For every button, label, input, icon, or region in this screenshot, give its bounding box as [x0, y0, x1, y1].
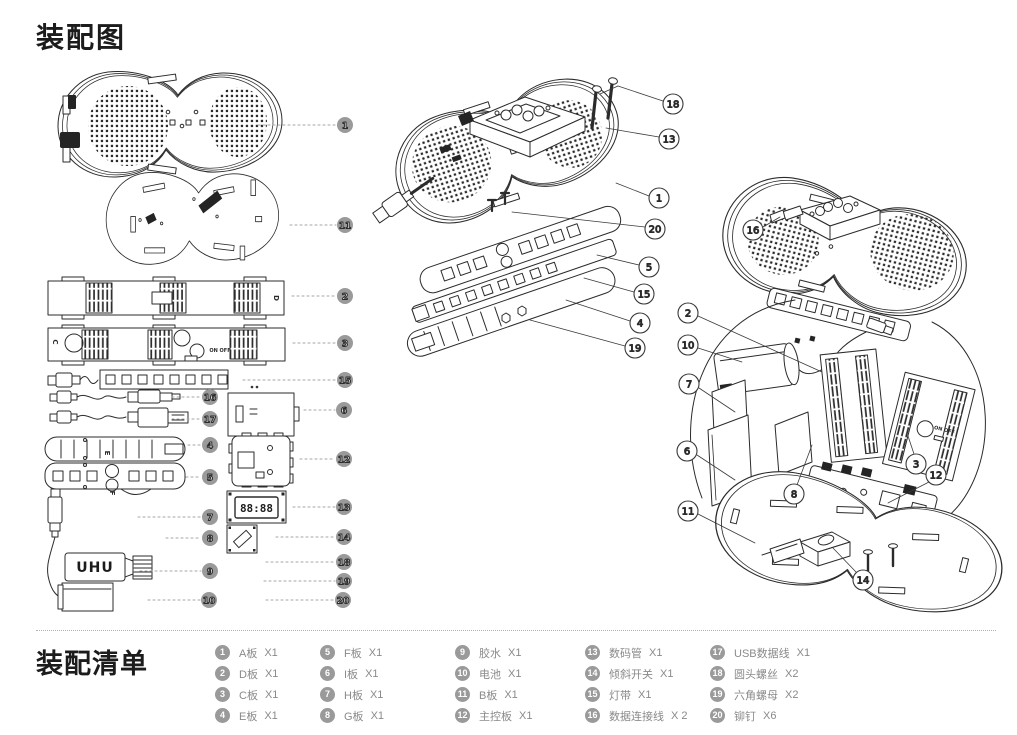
item-label: I板: [344, 666, 358, 682]
callout-chip: 7: [202, 509, 218, 525]
svg-text:6: 6: [684, 447, 690, 458]
svg-text:4: 4: [637, 319, 643, 330]
item-number-badge: 2: [215, 666, 230, 681]
parts-list-item: 3C板X1: [215, 687, 278, 702]
item-qty: X1: [638, 689, 651, 701]
svg-text:10: 10: [203, 597, 216, 607]
svg-text:2: 2: [342, 293, 348, 303]
parts-list-item: 10电池X1: [455, 666, 532, 681]
svg-text:14: 14: [857, 576, 870, 587]
svg-text:18: 18: [667, 100, 680, 111]
footer-divider: [36, 630, 996, 631]
item-label: B板: [479, 687, 497, 703]
callout-circle: 16: [743, 220, 763, 240]
parts-list-item: 6I板X1: [320, 666, 384, 681]
part-drawing-digital-tube: 88:88: [227, 491, 286, 523]
parts-list-column-4: 13数码管X1 14倾斜开关X1 15灯带X1 16数据连接线X 2: [585, 645, 688, 723]
item-label: A板: [239, 645, 257, 661]
parts-list-item: 16数据连接线X 2: [585, 708, 688, 723]
svg-text:19: 19: [629, 344, 642, 355]
callout-chip: 14: [336, 529, 352, 545]
part-drawing-data-cable: [50, 390, 180, 403]
svg-text:7: 7: [207, 514, 213, 524]
callout-circle: 8: [784, 484, 804, 504]
item-qty: X1: [365, 668, 378, 680]
item-label: 六角螺母: [734, 687, 778, 703]
part-drawing-b-board: [106, 173, 278, 265]
parts-list-item: 5F板X1: [320, 645, 384, 660]
svg-text:12: 12: [930, 471, 943, 482]
svg-text:10: 10: [682, 341, 695, 352]
svg-text:19: 19: [338, 578, 351, 588]
item-number-badge: 7: [320, 687, 335, 702]
parts-list-item: 12主控板X1: [455, 708, 532, 723]
item-label: D板: [239, 666, 258, 682]
callout-circle: 11: [678, 501, 698, 521]
etched-letter-f: F: [108, 491, 116, 496]
svg-text:5: 5: [646, 263, 652, 274]
item-label: 灯带: [609, 687, 631, 703]
item-qty: X1: [508, 668, 521, 680]
callout-chip: 8: [202, 530, 218, 546]
parts-list-title: 装配清单: [36, 642, 148, 681]
parts-list-item: 18圆头螺丝X2: [710, 666, 810, 681]
callout-chip: 11: [337, 217, 353, 233]
svg-text:11: 11: [682, 507, 695, 518]
callout-chip: 12: [336, 451, 352, 467]
item-qty: X1: [504, 689, 517, 701]
callout-chip: 18: [336, 554, 352, 570]
callout-chip: 6: [336, 402, 352, 418]
svg-text:9: 9: [207, 568, 213, 578]
item-qty: X1: [519, 710, 532, 722]
parts-list-column-3: 9胶水X1 10电池X1 11B板X1 12主控板X1: [455, 645, 532, 723]
callout-circle: 2: [678, 303, 698, 323]
svg-text:11: 11: [339, 222, 352, 232]
parts-list-item: 1A板X1: [215, 645, 278, 660]
assembly-manual-page: { "header": { "title": "装配图" }, "footer"…: [0, 0, 1017, 735]
item-label: 倾斜开关: [609, 666, 653, 682]
item-label: 铆钉: [734, 708, 756, 724]
parts-list-column-5: 17USB数据线X1 18圆头螺丝X2 19六角螺母X2 20铆钉X6: [710, 645, 810, 723]
etched-letter-d: D: [272, 295, 280, 301]
callout-circle: 4: [630, 313, 650, 333]
callout-circle: 20: [645, 219, 665, 239]
svg-text:12: 12: [338, 456, 351, 466]
item-label: F板: [344, 645, 362, 661]
item-label: USB数据线: [734, 645, 790, 661]
item-label: 数据连接线: [609, 708, 664, 724]
parts-list-item: 8G板X1: [320, 708, 384, 723]
svg-text:18: 18: [338, 559, 351, 569]
item-label: E板: [239, 708, 257, 724]
item-number-badge: 12: [455, 708, 470, 723]
item-number-badge: 17: [710, 645, 725, 660]
right-exploded-view: ON OFF: [677, 164, 1013, 630]
middle-exploded-view: 18 13 1 20 5 15 4 19: [371, 63, 683, 360]
part-drawing-tilt-switch: [227, 525, 257, 553]
item-qty: X1: [264, 647, 277, 659]
item-qty: X1: [660, 668, 673, 680]
item-qty: X1: [370, 689, 383, 701]
item-number-badge: 16: [585, 708, 600, 723]
parts-list-item: 2D板X1: [215, 666, 278, 681]
item-label: 圆头螺丝: [734, 666, 778, 682]
part-drawing-led-strip: [48, 370, 228, 389]
etched-letter-c: C: [51, 339, 59, 344]
svg-text:4: 4: [207, 442, 213, 452]
part-drawing-glue: UHU: [65, 553, 152, 581]
item-number-badge: 15: [585, 687, 600, 702]
svg-text:17: 17: [204, 416, 217, 426]
item-number-badge: 20: [710, 708, 725, 723]
callout-chip: 4: [202, 437, 218, 453]
parts-list-item: 13数码管X1: [585, 645, 688, 660]
svg-text:8: 8: [791, 490, 797, 501]
callout-chip: 10: [201, 592, 217, 608]
svg-text:1: 1: [342, 122, 348, 132]
item-label: 胶水: [479, 645, 501, 661]
callout-circle: 3: [906, 454, 926, 474]
callout-circle: 7: [679, 374, 699, 394]
svg-text:15: 15: [638, 290, 651, 301]
parts-list-column-1: 1A板X1 2D板X1 3C板X1 4E板X1: [215, 645, 278, 723]
part-drawing-usb-cable: [50, 408, 188, 427]
part-drawing-i-board: [228, 386, 299, 436]
parts-list-item: 20铆钉X6: [710, 708, 810, 723]
svg-text:3: 3: [913, 460, 919, 471]
assembly-diagram: D C ON OFF: [0, 0, 1017, 630]
callout-circle: 14: [853, 570, 873, 590]
svg-text:16: 16: [747, 226, 760, 237]
g-panel-3d: [775, 412, 812, 475]
item-number-badge: 1: [215, 645, 230, 660]
stacked-strips-3d: [386, 203, 642, 360]
parts-list-item: 9胶水X1: [455, 645, 532, 660]
callout-chip: 1: [337, 117, 353, 133]
item-number-badge: 9: [455, 645, 470, 660]
item-number-badge: 3: [215, 687, 230, 702]
callout-chip: 16: [202, 389, 218, 405]
parts-list-item: 15灯带X1: [585, 687, 688, 702]
parts-list-item: 4E板X1: [215, 708, 278, 723]
callout-chip: 20: [335, 592, 351, 608]
item-label: C板: [239, 687, 258, 703]
item-number-badge: 11: [455, 687, 470, 702]
callout-circle: 10: [678, 335, 698, 355]
item-label: 数码管: [609, 645, 642, 661]
part-drawing-f-board: F: [45, 463, 185, 496]
item-label: 主控板: [479, 708, 512, 724]
item-qty: X1: [508, 647, 521, 659]
callout-chip: 2: [337, 288, 353, 304]
callout-circle: 15: [634, 284, 654, 304]
callout-circle: 5: [639, 257, 659, 277]
item-qty: X1: [797, 647, 810, 659]
callout-chip: 17: [202, 411, 218, 427]
item-qty: X6: [763, 710, 776, 722]
item-qty: X1: [265, 689, 278, 701]
part-drawing-c-board: C ON OFF: [48, 325, 285, 365]
item-number-badge: 5: [320, 645, 335, 660]
item-number-badge: 10: [455, 666, 470, 681]
callout-chip: 15: [337, 372, 353, 388]
svg-text:6: 6: [341, 407, 347, 417]
item-qty: X2: [785, 668, 798, 680]
svg-text:1: 1: [656, 194, 662, 205]
glue-brand-label: UHU: [76, 560, 113, 576]
svg-text:3: 3: [342, 340, 348, 350]
item-qty: X1: [369, 647, 382, 659]
item-number-badge: 19: [710, 687, 725, 702]
callout-chip: 13: [336, 499, 352, 515]
svg-text:14: 14: [338, 534, 351, 544]
callout-circle: 12: [926, 465, 946, 485]
item-qty: X1: [264, 710, 277, 722]
hinged-walls-3d: ON OFF: [820, 349, 975, 481]
item-label: H板: [344, 687, 363, 703]
item-qty: X1: [371, 710, 384, 722]
item-qty: X1: [265, 668, 278, 680]
etched-letter-e: E: [103, 451, 111, 456]
item-qty: X 2: [671, 710, 688, 722]
callout-circle: 6: [677, 441, 697, 461]
callout-circle: 13: [659, 129, 679, 149]
part-drawing-battery: [48, 489, 113, 611]
callout-chip: 19: [336, 573, 352, 589]
svg-text:7: 7: [686, 380, 692, 391]
part-drawing-a-board: [58, 72, 282, 178]
callout-circle: 1: [649, 188, 669, 208]
callout-chip: 3: [337, 335, 353, 351]
item-number-badge: 14: [585, 666, 600, 681]
parts-list-item: 7H板X1: [320, 687, 384, 702]
part-drawing-e-board: E: [45, 437, 185, 461]
item-qty: X2: [785, 689, 798, 701]
parts-list-item: 14倾斜开关X1: [585, 666, 688, 681]
parts-list-item: 17USB数据线X1: [710, 645, 810, 660]
svg-text:16: 16: [204, 394, 217, 404]
on-off-label: ON OFF: [209, 348, 230, 354]
part-drawing-main-board: [229, 433, 293, 487]
parts-list-item: 19六角螺母X2: [710, 687, 810, 702]
callout-chip: 5: [202, 469, 218, 485]
item-number-badge: 18: [710, 666, 725, 681]
callout-circle: 19: [625, 338, 645, 358]
callout-circle: 18: [663, 94, 683, 114]
svg-text:5: 5: [207, 474, 213, 484]
svg-text:20: 20: [649, 225, 662, 236]
item-qty: X1: [649, 647, 662, 659]
callout-chip: 9: [202, 563, 218, 579]
parts-list-item: 11B板X1: [455, 687, 532, 702]
item-number-badge: 4: [215, 708, 230, 723]
item-number-badge: 6: [320, 666, 335, 681]
parts-list-column-2: 5F板X1 6I板X1 7H板X1 8G板X1: [320, 645, 384, 723]
svg-text:20: 20: [337, 597, 350, 607]
item-label: 电池: [479, 666, 501, 682]
svg-text:13: 13: [338, 504, 351, 514]
svg-text:8: 8: [207, 535, 213, 545]
item-number-badge: 13: [585, 645, 600, 660]
svg-text:13: 13: [663, 135, 676, 146]
item-label: G板: [344, 708, 364, 724]
item-number-badge: 8: [320, 708, 335, 723]
display-digits: 88:88: [240, 502, 273, 515]
svg-text:15: 15: [339, 377, 352, 387]
svg-text:2: 2: [685, 309, 691, 320]
part-drawing-d-board: D: [48, 277, 284, 319]
